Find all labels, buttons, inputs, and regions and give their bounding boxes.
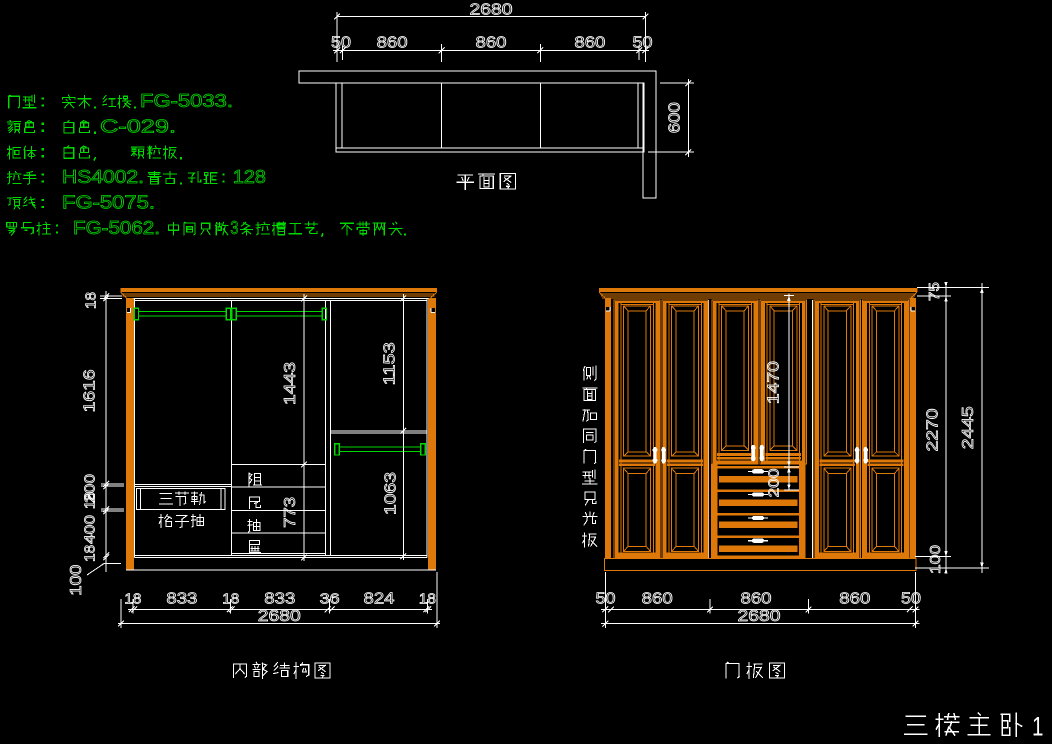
svg-text:50: 50 (633, 35, 653, 52)
svg-text:HS4002.: HS4002. (62, 167, 144, 187)
svg-text:FG-5075.: FG-5075. (62, 193, 155, 213)
svg-text:100: 100 (927, 545, 944, 574)
svg-text:2680: 2680 (470, 2, 513, 19)
svg-text:FG-5062.: FG-5062. (73, 218, 160, 238)
svg-text:400: 400 (82, 515, 99, 544)
svg-text:50: 50 (901, 590, 921, 607)
svg-text:2680: 2680 (738, 608, 781, 625)
svg-text:50: 50 (331, 35, 351, 52)
svg-text:860: 860 (642, 590, 673, 607)
svg-text:C-029.: C-029. (100, 116, 176, 136)
svg-text:18: 18 (82, 492, 99, 509)
svg-text:1443: 1443 (282, 362, 299, 405)
svg-text:1616: 1616 (82, 369, 99, 412)
svg-text:200: 200 (766, 469, 783, 498)
svg-text:860: 860 (741, 590, 772, 607)
svg-text:18: 18 (419, 590, 436, 607)
svg-text:2445: 2445 (960, 406, 977, 449)
svg-text:1153: 1153 (382, 342, 399, 385)
svg-text:2680: 2680 (258, 608, 301, 625)
svg-text:100: 100 (68, 565, 85, 596)
svg-text:1063: 1063 (383, 472, 400, 515)
svg-text:824: 824 (364, 590, 395, 607)
svg-text:50: 50 (596, 590, 616, 607)
svg-text:18: 18 (82, 292, 99, 309)
svg-text:2270: 2270 (924, 408, 941, 451)
svg-text:860: 860 (839, 590, 870, 607)
svg-text:1: 1 (1032, 712, 1044, 742)
svg-text:833: 833 (166, 590, 197, 607)
svg-text:1470: 1470 (766, 361, 783, 404)
svg-text:860: 860 (377, 35, 408, 52)
svg-text:FG-5033.: FG-5033. (140, 91, 233, 111)
svg-text:773: 773 (282, 497, 299, 528)
svg-text:36: 36 (320, 590, 340, 607)
svg-text:860: 860 (574, 35, 605, 52)
svg-text:128: 128 (233, 167, 266, 187)
svg-text:18: 18 (82, 545, 99, 562)
svg-text:18: 18 (124, 590, 141, 607)
svg-text:3: 3 (230, 218, 238, 238)
svg-text:600: 600 (667, 102, 684, 133)
svg-text:75: 75 (926, 282, 943, 301)
svg-text:833: 833 (264, 590, 295, 607)
svg-text:860: 860 (476, 35, 507, 52)
svg-text:18: 18 (222, 590, 239, 607)
